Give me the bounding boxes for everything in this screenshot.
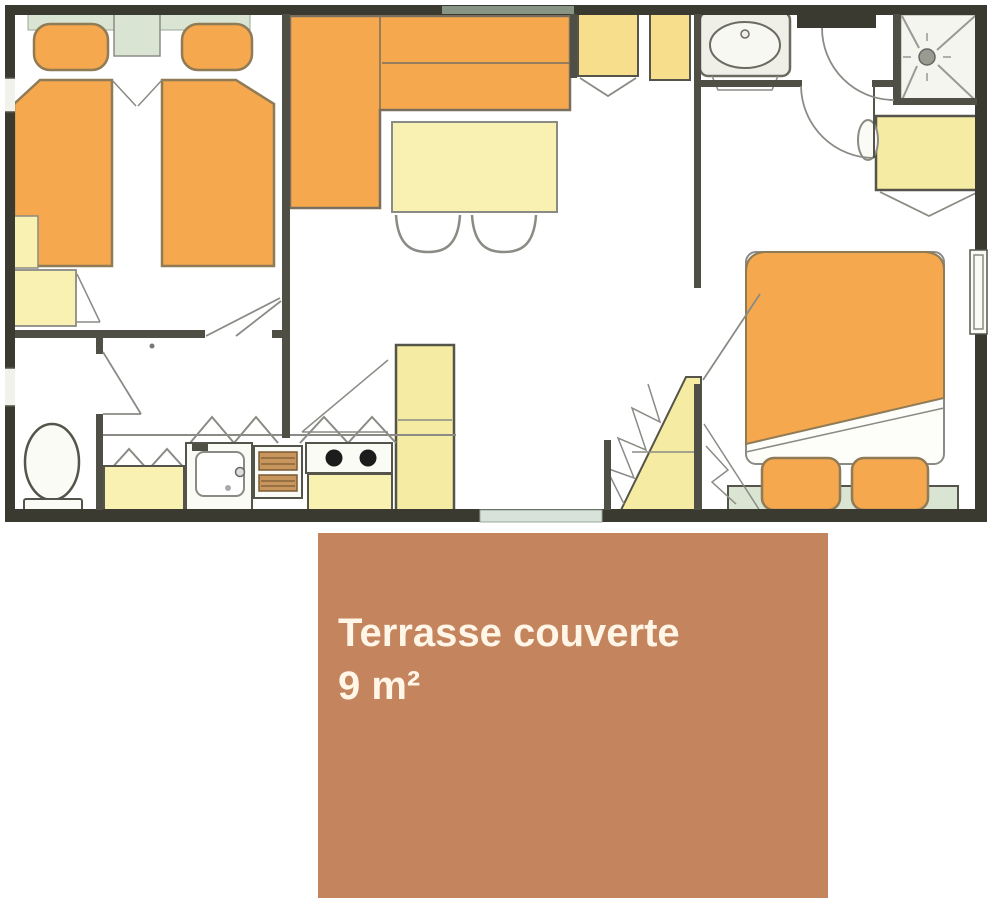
window-top-living — [442, 6, 574, 14]
chair-1 — [396, 215, 460, 252]
burner-2 — [360, 450, 377, 467]
cooktop — [306, 443, 392, 473]
toilet-bowl — [25, 424, 79, 500]
wall-bedroom-living — [282, 14, 290, 438]
single-bed-right — [162, 80, 274, 266]
chair-2 — [472, 215, 536, 252]
door-handle-dot — [150, 344, 155, 349]
faucet — [236, 468, 245, 477]
double-pillow-right — [852, 458, 928, 510]
double-pillow-left — [762, 458, 840, 510]
wc-door-swing — [103, 352, 141, 414]
terrace-area: 9 m² — [338, 660, 828, 713]
wc-room — [24, 424, 82, 514]
floorplan-page: Terrasse couverte 9 m² — [0, 0, 1000, 915]
pillow-right — [182, 24, 252, 70]
oven-rack-bottom — [259, 475, 297, 491]
window-left-wc — [5, 368, 15, 406]
dining-table — [392, 122, 557, 212]
wall-wc-lower — [96, 414, 103, 510]
bedside-shelf — [14, 216, 38, 268]
washbasin-bowl — [710, 22, 780, 68]
floorplan-drawing — [0, 0, 1000, 530]
dresser — [12, 270, 76, 326]
terrace-title: Terrasse couverte — [338, 607, 828, 660]
shower — [900, 14, 977, 102]
base-cabinet-left — [104, 466, 184, 516]
wall-shower-bottom — [893, 98, 977, 105]
wall-entry-stub — [604, 440, 611, 510]
closet-door-swing — [580, 78, 636, 96]
wall-cabinet-zigzag-1 — [190, 417, 278, 443]
bedroom-door-leaf — [206, 298, 281, 336]
sink-tap-plate — [192, 444, 208, 451]
drain — [225, 485, 231, 491]
closet-2 — [650, 12, 690, 80]
shower-door-arc — [822, 28, 894, 100]
window-left-bedroom — [5, 78, 15, 112]
desk — [876, 116, 982, 190]
wall-bedroom2-upper — [694, 84, 701, 288]
wall-closet-partition — [570, 14, 577, 78]
desk-cabinet-swing — [880, 192, 978, 216]
washroom — [578, 12, 977, 102]
wall-washroom-left — [694, 14, 701, 84]
oven-rack-top — [259, 452, 297, 470]
fridge-larder-column — [396, 345, 454, 515]
wall-washroom-south-1 — [701, 80, 802, 87]
wall-bedroom-south-stub — [272, 330, 282, 338]
shower-drain — [919, 49, 935, 65]
wall-washroom-south-2 — [872, 80, 894, 87]
wall-bedroom-south — [15, 330, 205, 338]
wall-top-notch — [797, 5, 876, 28]
twin-bedroom — [12, 10, 274, 326]
dresser-door-swing — [77, 274, 100, 322]
basin-faucet — [741, 30, 749, 38]
entry-door-opening — [480, 510, 602, 522]
wall-bedroom2-lower — [694, 384, 701, 510]
nightstand — [114, 10, 160, 56]
window-right-bedroom — [970, 250, 987, 334]
blanket-fold-lines — [112, 80, 162, 106]
closet-1 — [578, 14, 638, 76]
wall-wc-upper — [96, 338, 103, 354]
burner-1 — [326, 450, 343, 467]
pillow-left — [34, 24, 108, 70]
terrace-label-block: Terrasse couverte 9 m² — [318, 533, 828, 898]
wall-shower-left — [893, 14, 900, 102]
